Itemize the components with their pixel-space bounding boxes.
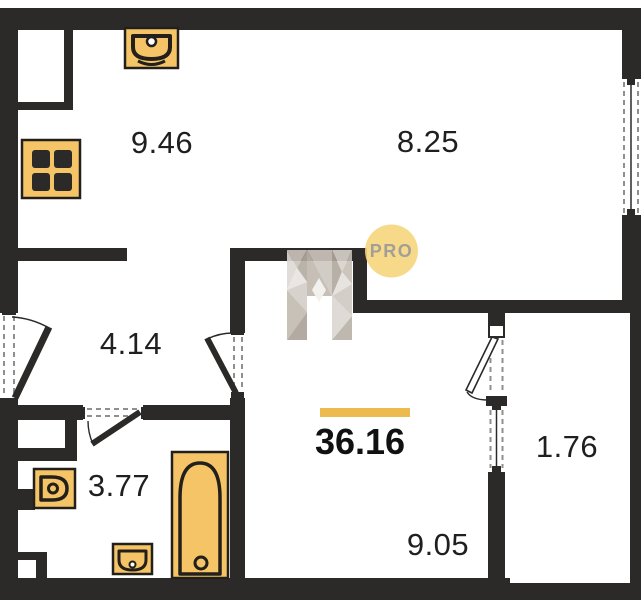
wall-balcony-right (630, 300, 641, 600)
wall-corner-duct-v (36, 560, 47, 578)
room-label-bathroom: 3.77 (88, 468, 150, 504)
wall-duct-bottom (18, 102, 73, 110)
hallway-door (207, 328, 244, 399)
floor-plan: PRO 9.46 8.25 4.14 3.77 9.05 1.76 36.16 (0, 0, 641, 600)
toilet-icon (18, 469, 75, 510)
wall-bath-niche-h (18, 448, 77, 461)
floor-plan-drawing: PRO (0, 0, 641, 600)
kitchen-sink-icon (125, 28, 178, 68)
watermark-logo-icon (287, 250, 352, 340)
wall-left-upper (0, 8, 18, 313)
watermark-pro-label: PRO (370, 241, 414, 261)
wall-bottom-main (0, 578, 510, 600)
walls (0, 8, 641, 600)
wall-balcony-partition-lower (488, 472, 505, 583)
room-label-living: 9.05 (407, 527, 469, 563)
watermark: PRO (287, 225, 418, 341)
room-label-room: 8.25 (397, 124, 459, 160)
room-label-kitchen: 9.46 (131, 125, 193, 161)
wall-right-mid (622, 222, 641, 313)
room-label-balcony: 1.76 (536, 429, 598, 465)
wall-duct-right (64, 30, 73, 110)
wall-right-upper (622, 30, 641, 72)
wall-divider-h2 (353, 300, 641, 313)
entrance-door (2, 308, 49, 405)
wall-balcony-bottom (505, 583, 641, 600)
stove-icon (22, 140, 80, 198)
room-label-hallway: 4.14 (100, 326, 162, 362)
washbasin-icon (113, 544, 152, 574)
bathtub-icon (172, 452, 228, 578)
total-area-accent-bar (320, 408, 410, 417)
window-right (622, 72, 641, 222)
wall-top (0, 8, 641, 30)
wall-corner-duct-h (18, 552, 47, 560)
wall-left-lower (0, 398, 18, 600)
wall-hall-right-lower (230, 398, 245, 578)
wall-bath-top-right (143, 405, 245, 420)
total-area-label: 36.16 (315, 421, 405, 463)
wall-bath-top-left (18, 405, 83, 420)
bathroom-door (79, 407, 147, 444)
wall-kitchen-hall-stub (18, 248, 127, 261)
